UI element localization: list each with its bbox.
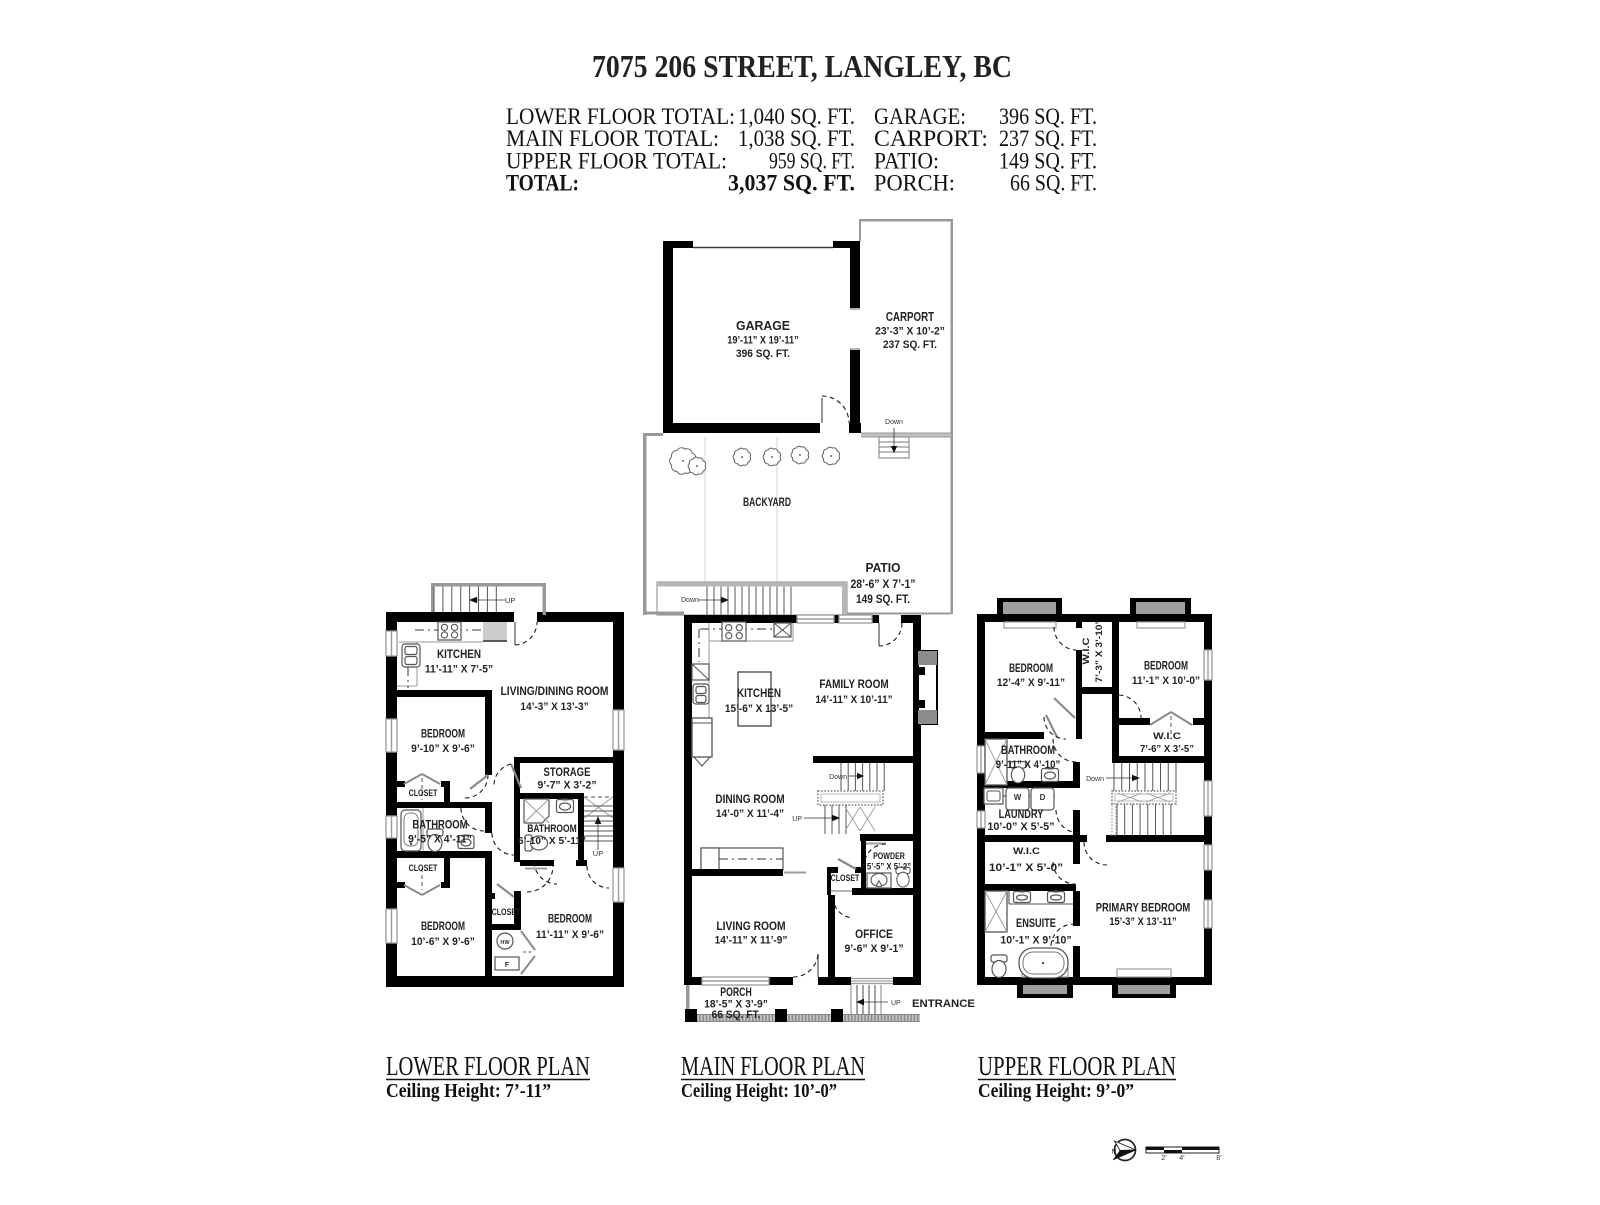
svg-text:BEDROOM: BEDROOM [421, 921, 465, 933]
svg-text:Down: Down [681, 597, 699, 604]
svg-text:CLOSET: CLOSET [492, 907, 521, 917]
svg-text:ENTRANCE: ENTRANCE [912, 998, 975, 1010]
svg-text:15’-6” X 13’-5”: 15’-6” X 13’-5” [725, 703, 793, 715]
svg-text:10’-6” X 9’-6”: 10’-6” X 9’-6” [411, 936, 475, 948]
svg-text:3,037 SQ. FT.: 3,037 SQ. FT. [728, 171, 855, 196]
svg-text:CLOSET: CLOSET [409, 788, 438, 798]
svg-text:FAMILY ROOM: FAMILY ROOM [819, 679, 888, 691]
svg-text:10’-1” X 5’-0”: 10’-1” X 5’-0” [989, 862, 1063, 874]
svg-text:GARAGE: GARAGE [736, 319, 790, 333]
svg-text:9’-6” X 9’-1”: 9’-6” X 9’-1” [844, 943, 903, 955]
svg-text:BATHROOM: BATHROOM [412, 820, 467, 832]
svg-text:Down: Down [885, 419, 903, 426]
svg-text:CLOSET: CLOSET [409, 863, 438, 873]
svg-text:Ceiling Height: 7’-11”: Ceiling Height: 7’-11” [386, 1080, 551, 1102]
svg-text:BEDROOM: BEDROOM [1009, 663, 1053, 675]
svg-text:6’-10” X 5’-11”: 6’-10” X 5’-11” [518, 835, 586, 847]
svg-text:Down: Down [1086, 776, 1104, 783]
svg-text:14’-3” X 13’-3”: 14’-3” X 13’-3” [520, 701, 588, 713]
svg-text:BEDROOM: BEDROOM [421, 729, 465, 741]
svg-text:OFFICE: OFFICE [855, 929, 893, 941]
svg-text:15’-3” X 13’-11”: 15’-3” X 13’-11” [1109, 916, 1176, 928]
svg-text:STORAGE: STORAGE [544, 767, 591, 779]
svg-text:2’: 2’ [1161, 1155, 1167, 1162]
svg-text:W.I.C: W.I.C [1081, 637, 1092, 664]
svg-text:149 SQ. FT.: 149 SQ. FT. [856, 594, 910, 606]
svg-text:14’-11” X 10’-11”: 14’-11” X 10’-11” [815, 694, 892, 706]
svg-text:PATIO: PATIO [866, 561, 901, 575]
svg-text:KITCHEN: KITCHEN [437, 649, 481, 661]
svg-text:PORCH: PORCH [720, 987, 752, 999]
svg-text:BATHROOM: BATHROOM [527, 823, 577, 835]
svg-text:W: W [1014, 793, 1022, 802]
svg-text:LIVING/DINING ROOM: LIVING/DINING ROOM [501, 686, 609, 698]
svg-text:23’-3” X 10’-2”: 23’-3” X 10’-2” [875, 326, 945, 338]
svg-text:11’-11” X 7’-5”: 11’-11” X 7’-5” [425, 664, 493, 676]
svg-text:19’-11” X 19’-11”: 19’-11” X 19’-11” [727, 335, 798, 347]
svg-text:9’-7” X 3’-2”: 9’-7” X 3’-2” [537, 780, 596, 792]
svg-text:PRIMARY BEDROOM: PRIMARY BEDROOM [1096, 903, 1191, 915]
svg-text:28’-6” X 7’-1”: 28’-6” X 7’-1” [850, 579, 915, 591]
svg-text:LOWER FLOOR PLAN: LOWER FLOOR PLAN [386, 1051, 590, 1081]
svg-text:POWDER: POWDER [873, 851, 905, 862]
svg-text:66 SQ. FT.: 66 SQ. FT. [1010, 171, 1097, 196]
svg-text:14’-0” X 11’-4”: 14’-0” X 11’-4” [716, 808, 784, 820]
svg-text:LIVING ROOM: LIVING ROOM [716, 921, 785, 933]
svg-text:7’-3” X 3’-10”: 7’-3” X 3’-10” [1094, 619, 1105, 682]
svg-text:UP: UP [593, 849, 603, 858]
svg-text:Ceiling Height: 9’-0”: Ceiling Height: 9’-0” [978, 1080, 1134, 1102]
svg-text:Ceiling Height: 10’-0”: Ceiling Height: 10’-0” [681, 1080, 837, 1102]
svg-text:W.I.C: W.I.C [1153, 731, 1181, 742]
svg-text:14’-11” X 11’-9”: 14’-11” X 11’-9” [715, 935, 788, 947]
svg-text:BEDROOM: BEDROOM [1144, 661, 1188, 673]
svg-text:F: F [505, 962, 510, 969]
svg-text:PORCH:: PORCH: [874, 171, 955, 196]
svg-text:TOTAL:: TOTAL: [506, 171, 579, 196]
svg-text:UP: UP [505, 596, 515, 605]
svg-text:8’: 8’ [1216, 1155, 1222, 1162]
svg-text:UP: UP [792, 816, 802, 823]
svg-text:12’-4” X 9’-11”: 12’-4” X 9’-11” [997, 677, 1065, 689]
svg-text:10’-1” X 9’-10”: 10’-1” X 9’-10” [1000, 935, 1071, 947]
svg-text:LAUNDRY: LAUNDRY [999, 809, 1044, 821]
svg-text:9’-5” X 4’-11”: 9’-5” X 4’-11” [408, 834, 472, 846]
svg-text:396 SQ. FT.: 396 SQ. FT. [736, 348, 790, 360]
svg-text:BATHROOM: BATHROOM [1001, 745, 1055, 757]
svg-text:9’-11” X 4’-10”: 9’-11” X 4’-10” [996, 759, 1061, 771]
svg-text:HW: HW [500, 940, 510, 946]
svg-text:11’-1” X 10’-0”: 11’-1” X 10’-0” [1132, 675, 1200, 687]
svg-text:DINING ROOM: DINING ROOM [715, 794, 784, 806]
svg-text:Down: Down [829, 774, 847, 781]
svg-text:CARPORT: CARPORT [886, 310, 935, 324]
svg-text:ENSUITE: ENSUITE [1016, 918, 1056, 930]
svg-text:BACKYARD: BACKYARD [743, 495, 791, 509]
svg-text:7075 206 STREET, LANGLEY, BC: 7075 206 STREET, LANGLEY, BC [592, 49, 1012, 84]
svg-text:CLOSET: CLOSET [831, 873, 860, 883]
svg-text:11’-11” X 9’-6”: 11’-11” X 9’-6” [536, 929, 604, 941]
svg-text:BEDROOM: BEDROOM [548, 914, 592, 926]
svg-text:5’-5” X 5’-2”: 5’-5” X 5’-2” [867, 862, 911, 872]
svg-text:N: N [1112, 1149, 1117, 1156]
svg-text:D: D [1040, 793, 1046, 802]
svg-text:MAIN FLOOR PLAN: MAIN FLOOR PLAN [681, 1051, 865, 1081]
svg-text:10’-0” X 5’-5”: 10’-0” X 5’-5” [987, 821, 1054, 833]
svg-text:237 SQ. FT.: 237 SQ. FT. [883, 339, 937, 351]
svg-text:4’: 4’ [1179, 1155, 1185, 1162]
svg-text:66 SQ. FT.: 66 SQ. FT. [712, 1009, 761, 1021]
svg-text:7’-6” X 3’-5”: 7’-6” X 3’-5” [1140, 744, 1194, 755]
svg-text:UPPER FLOOR PLAN: UPPER FLOOR PLAN [978, 1051, 1176, 1081]
svg-text:W.I.C: W.I.C [1013, 846, 1040, 857]
svg-text:UP: UP [891, 1000, 901, 1007]
svg-text:9’-10” X 9’-6”: 9’-10” X 9’-6” [411, 743, 475, 755]
svg-text:KITCHEN: KITCHEN [737, 688, 781, 700]
